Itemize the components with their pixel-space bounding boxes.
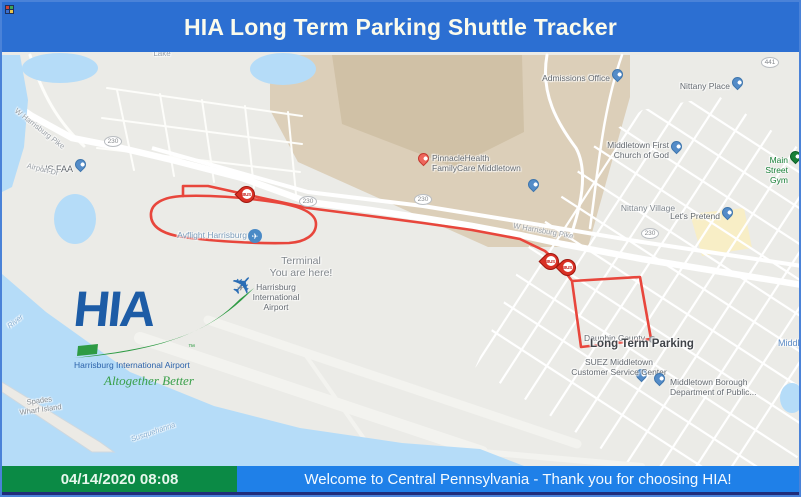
place-label-nittany-village: Nittany Village (621, 204, 675, 214)
poi-pin-admissions-office[interactable] (610, 67, 626, 83)
poi-label-main-street-gym: Main Street Gym (765, 156, 788, 185)
road-label-w-harrisburg-pike: W Harrisburg Pike (13, 107, 66, 151)
place-label-lake: Lake (153, 52, 170, 58)
poi-pin-pinnaclehealth-familycare-midd[interactable] (416, 151, 432, 167)
map[interactable]: ✈ HIA ™ Harrisburg International Airport… (2, 52, 799, 466)
poi-label-admissions-office: Admissions Office (542, 74, 610, 84)
datetime-display: 04/14/2020 08:08 (2, 466, 237, 492)
place-label-spades-wharf-island: Spades Wharf Island (18, 394, 62, 417)
road-label-river: River (6, 313, 25, 331)
route-shield-230: 230 (641, 228, 659, 239)
route-shield-230: 230 (104, 136, 122, 147)
poi-label-let-s-pretend: Let's Pretend (670, 212, 720, 222)
poi-pin-harrisburg-international-airpo[interactable]: ✈ (237, 283, 245, 294)
poi-label-pinnaclehealth-familycare-midd: PinnacleHealth FamilyCare Middletown (432, 154, 521, 174)
footer: 04/14/2020 08:08 Welcome to Central Penn… (2, 466, 799, 492)
shuttle-pin-label: BUS (563, 262, 573, 272)
shuttle-marker-1[interactable]: BUS (238, 186, 256, 210)
poi-pin-us-faa[interactable] (73, 157, 89, 173)
app-window: HIA Long Term Parking Shuttle Tracker (0, 0, 801, 497)
welcome-message: Welcome to Central Pennsylvania - Thank … (237, 466, 799, 492)
window-bottom-border (2, 492, 799, 495)
road-label-w-harrisburg-pike: W Harrisburg Pike (513, 222, 574, 241)
poi-label-nittany-place: Nittany Place (680, 82, 730, 92)
route-shield-230: 230 (414, 194, 432, 205)
shuttle-pin-label: BUS (546, 256, 556, 266)
poi-label-middletown-first-church-of-god: Middletown First Church of God (607, 141, 669, 161)
place-label-terminal-you-are-here: Terminal You are here! (270, 255, 333, 279)
place-label-middletown: Middletown (778, 338, 799, 348)
window-icon (5, 5, 14, 14)
road-label-susquehanna: Susquehanna (130, 421, 177, 444)
poi-pin-main-street-gym[interactable] (788, 149, 799, 165)
map-overlay: US FAAAdmissions OfficeNittany PlaceMidd… (2, 52, 799, 466)
route-shield-230: 230 (299, 196, 317, 207)
route-shield-441: 441 (761, 57, 779, 68)
header: HIA Long Term Parking Shuttle Tracker (2, 2, 799, 52)
poi-pin-poi[interactable] (526, 177, 542, 193)
poi-label-suez-middletown-customer-servi: SUEZ Middletown Customer Service Center (571, 358, 666, 378)
poi-pin-nittany-place[interactable] (730, 75, 746, 91)
page-title: HIA Long Term Parking Shuttle Tracker (184, 14, 617, 41)
poi-label-harrisburg-international-airpo: Harrisburg International Airport (253, 283, 300, 312)
poi-label-middletown-borough-department-: Middletown Borough Department of Public.… (670, 378, 756, 398)
shuttle-marker-3[interactable]: BUS (559, 259, 577, 283)
shuttle-pin-label: BUS (242, 189, 252, 199)
poi-label-avflight-harrisburg: Avflight Harrisburg (177, 231, 247, 241)
poi-pin-avflight-harrisburg[interactable]: ✈ (248, 229, 262, 243)
poi-pin-middletown-first-church-of-god[interactable] (669, 139, 685, 155)
place-label-long-term-parking: Long Term Parking (590, 338, 694, 351)
poi-pin-let-s-pretend[interactable] (720, 205, 736, 221)
